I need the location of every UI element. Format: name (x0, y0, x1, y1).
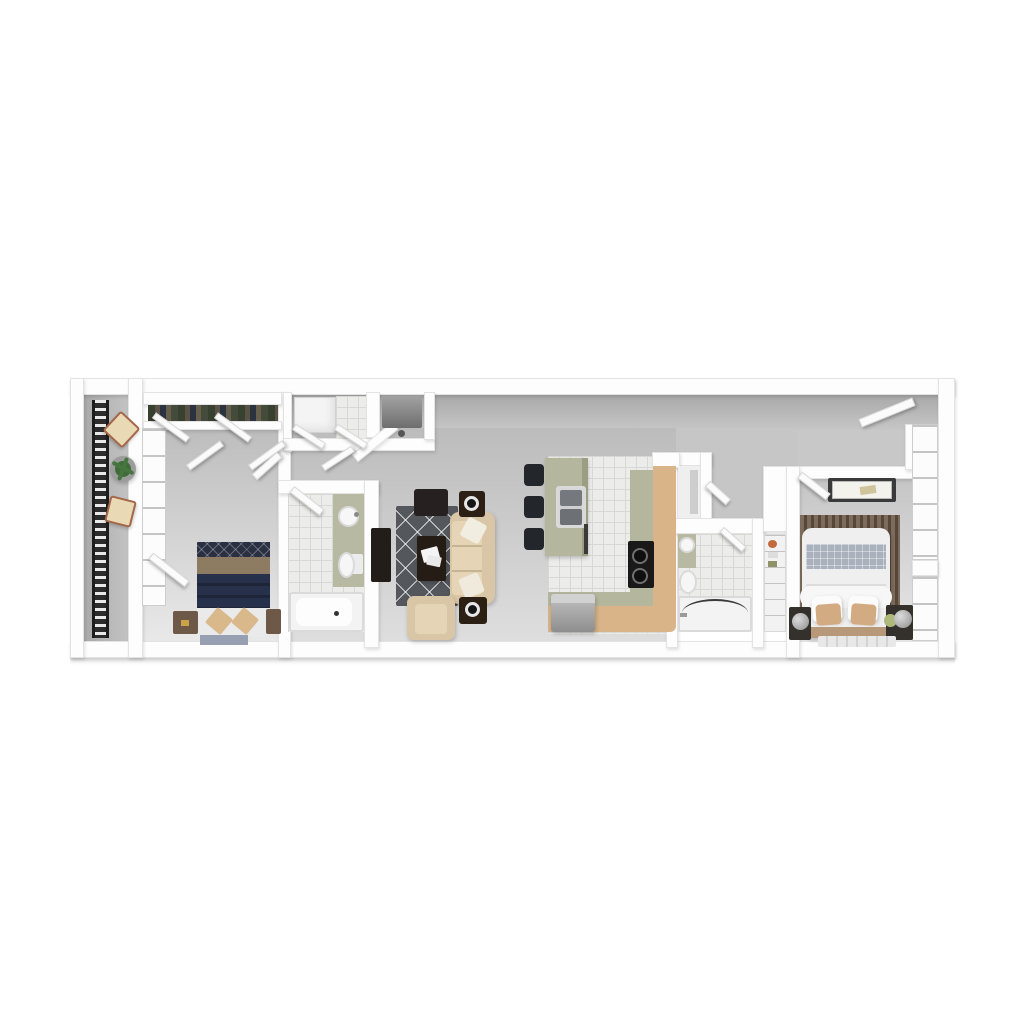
utility-closet-divider-wall (366, 392, 380, 438)
bathroom1-toilet (338, 552, 355, 578)
bed1-headboard-band (197, 542, 270, 557)
washer-dryer (382, 396, 422, 428)
bathroom2-sink (679, 537, 695, 553)
bed2-pillow-tan-1 (815, 603, 841, 626)
island-sink-basin-1 (560, 490, 582, 506)
linen-item-box (768, 561, 777, 567)
bedroom1-rug (200, 635, 248, 645)
side-table-bottom-bowl (465, 602, 480, 617)
bed1-tan-band (197, 557, 270, 574)
wall-tv (371, 528, 391, 582)
bar-stool-2 (524, 496, 544, 518)
island-sink-basin-2 (560, 509, 582, 525)
cooktop-burner-2 (632, 568, 648, 584)
island-dishwasher-handle (584, 524, 588, 554)
bedroom1-closet-clothes (148, 405, 278, 421)
bedroom2-rug (818, 636, 896, 647)
bathroom1-tub-basin (296, 598, 352, 626)
sofa-cushion-line-1 (452, 545, 482, 547)
hall-east-wall (763, 466, 788, 532)
floorplan (0, 0, 1024, 1024)
bar-stool-3 (524, 528, 544, 550)
bed2-pillow-tan-2 (850, 603, 876, 626)
bathroom2-toilet (679, 570, 697, 594)
washer-dryer-knob (398, 430, 405, 437)
armchair-seat (415, 604, 447, 634)
bedroom2-window-sill-wall (912, 560, 938, 576)
sofa-cushion-line-2 (452, 570, 482, 572)
bathroom2-right-wall (752, 518, 764, 648)
bedroom2-window-upper (912, 424, 938, 560)
plan-bottom-shadow (70, 658, 955, 665)
bedroom2-window-lower (912, 576, 938, 641)
ottoman (414, 489, 448, 516)
utility-closet-right-wall (424, 392, 435, 440)
bathroom2-tap (680, 613, 687, 617)
linen-closet-shelves (764, 534, 786, 632)
bedroom1-closet-shelf-top (143, 392, 282, 405)
island-sink-divider (560, 506, 582, 509)
bed1-trunk-right (266, 609, 281, 634)
hall-closet-panel (690, 470, 698, 514)
sphere-lamp-right (894, 610, 912, 628)
refrigerator-top (551, 594, 595, 603)
bathroom2-top-wall (666, 518, 764, 534)
bed2-plaid-blanket (806, 544, 886, 569)
outer-wall-left (70, 378, 84, 658)
sphere-lamp-left (792, 613, 809, 630)
linen-item-basket (768, 540, 777, 548)
bed1-navy-blanket (197, 574, 270, 608)
bar-stool-1 (524, 464, 544, 486)
floorplan-image (0, 0, 1024, 1024)
bathroom1-tub-drain (334, 611, 339, 616)
bed1-trunk-clasp (181, 620, 189, 626)
bedroom1-window (142, 428, 166, 606)
side-table-top-bowl (464, 496, 479, 511)
linen-item-towels (768, 552, 778, 558)
bathroom1-faucet (354, 512, 359, 517)
outer-wall-right (938, 378, 955, 658)
cooktop-burner-1 (632, 548, 648, 564)
